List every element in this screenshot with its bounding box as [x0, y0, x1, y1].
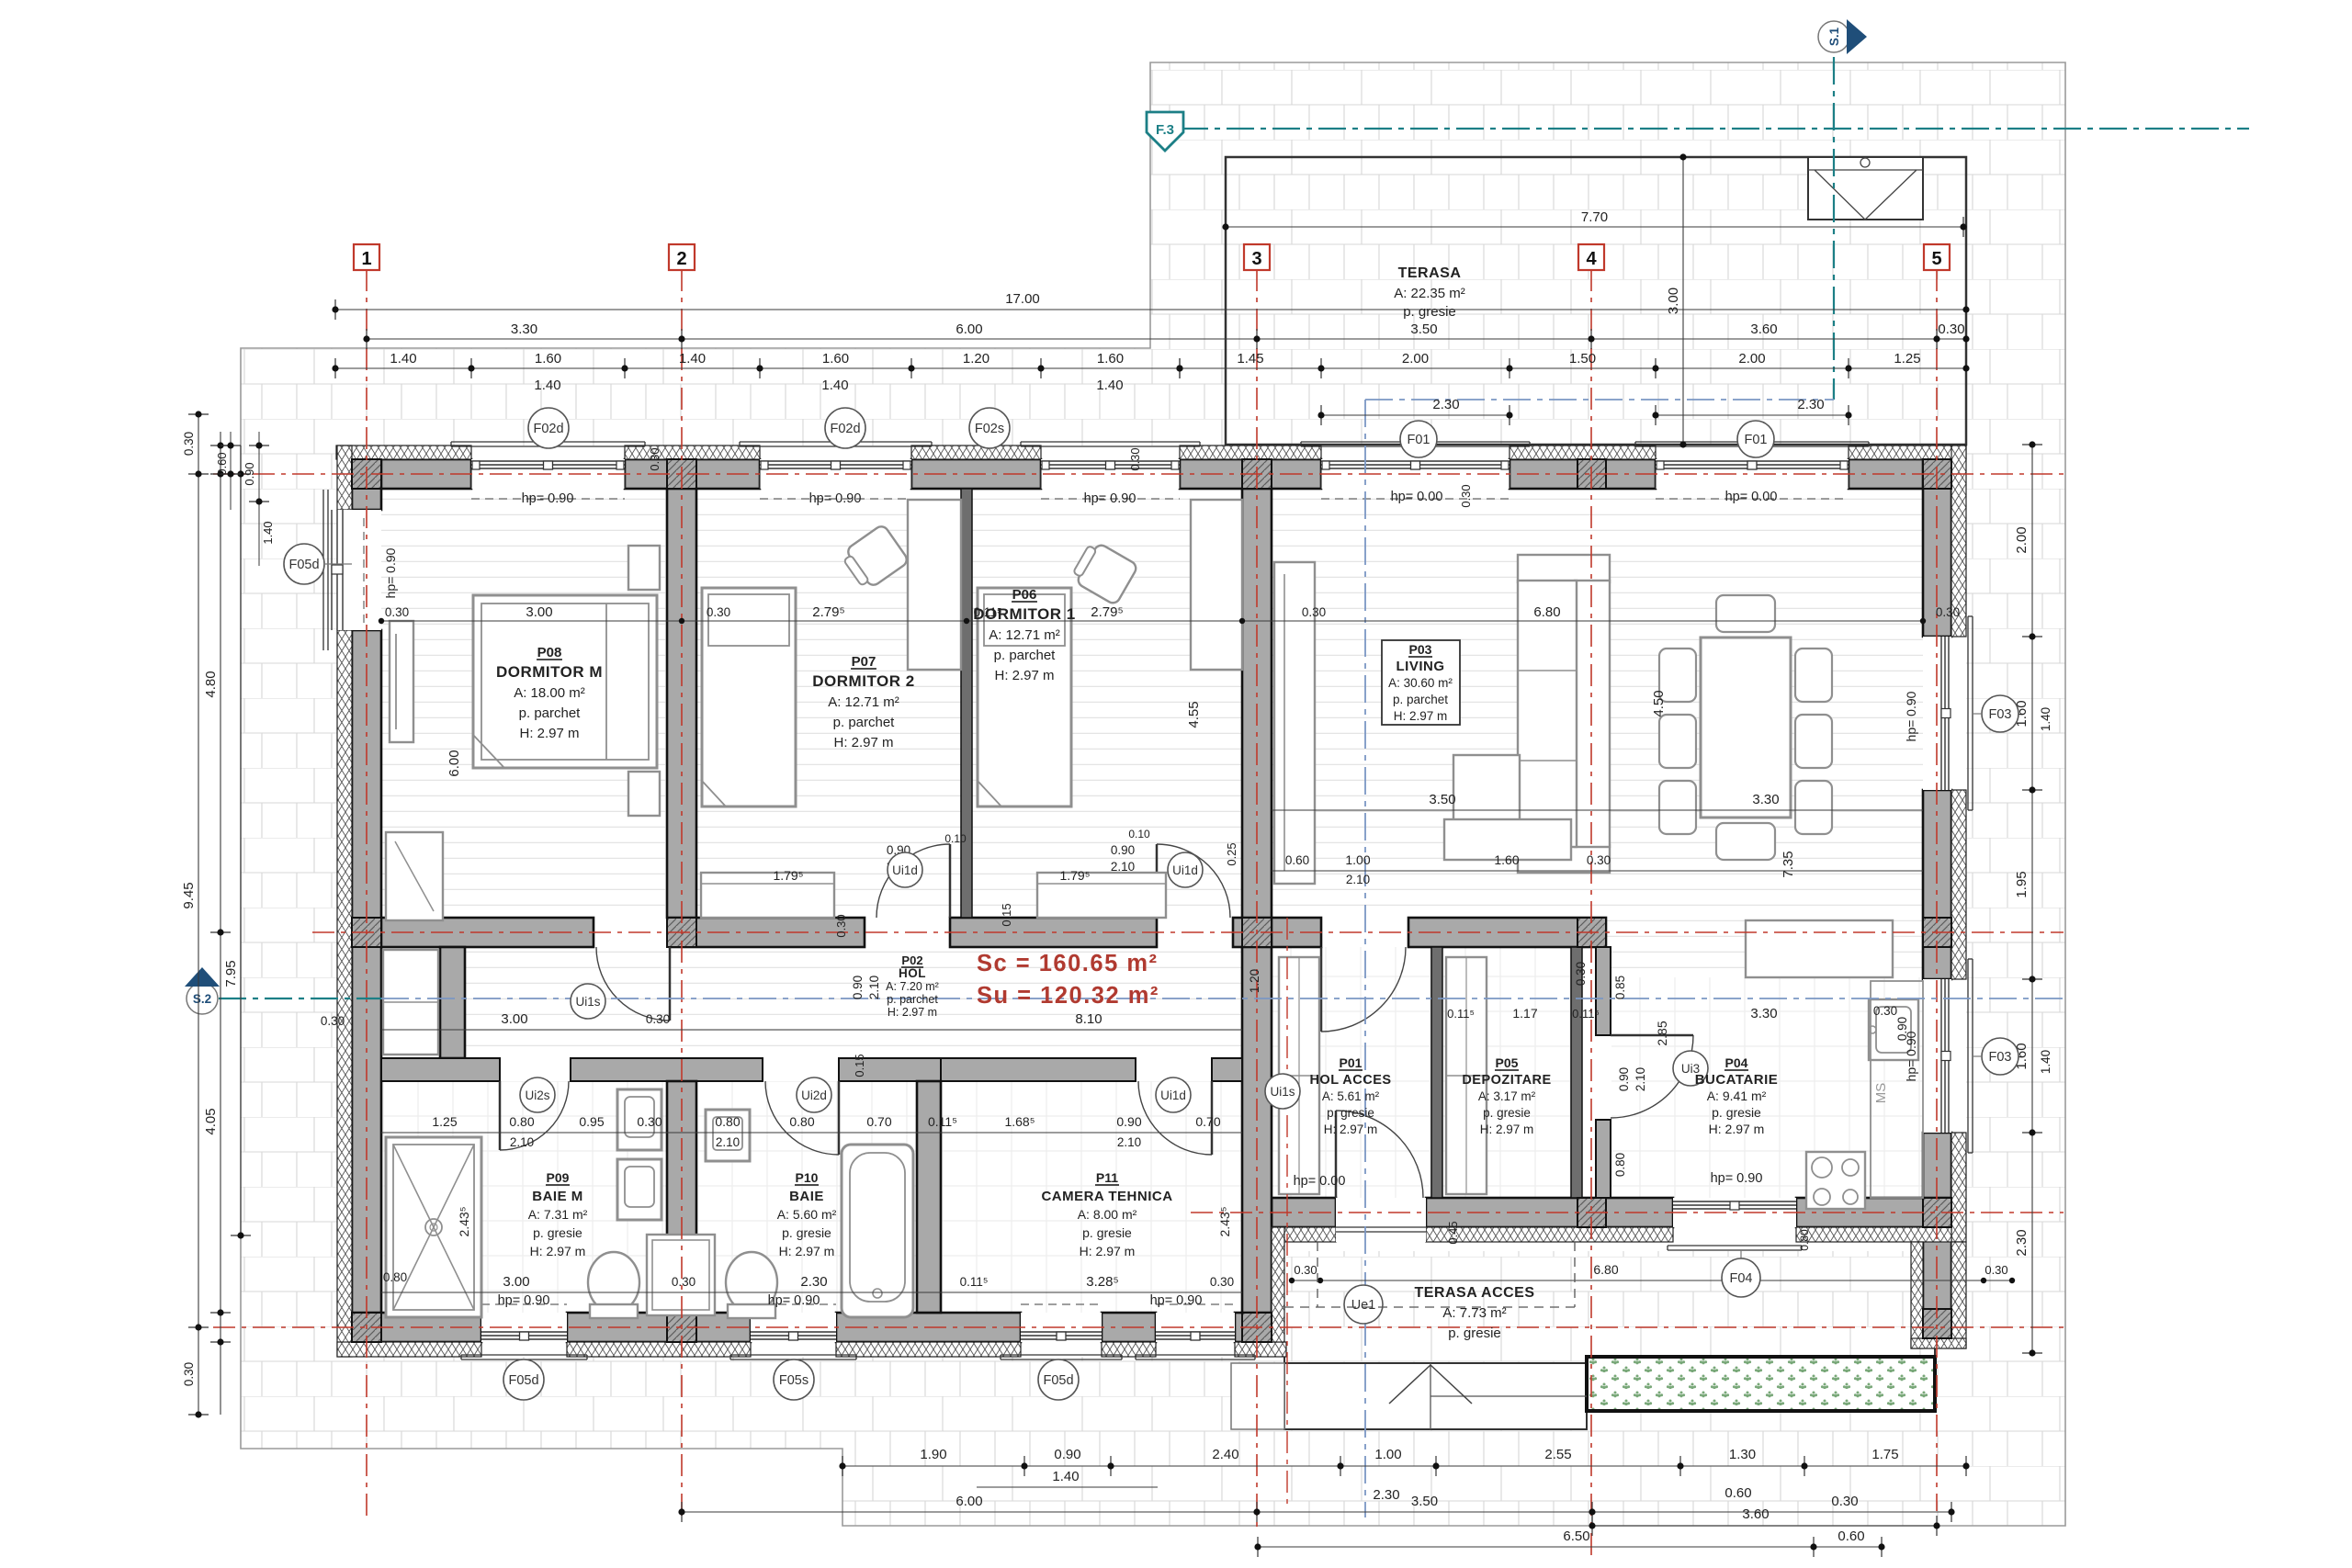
svg-text:2.40: 2.40	[1212, 1447, 1238, 1462]
svg-text:0.80: 0.80	[1613, 1153, 1627, 1177]
svg-text:H: 2.97 m: H: 2.97 m	[519, 726, 579, 741]
svg-text:0.80: 0.80	[789, 1114, 814, 1129]
svg-text:A: 5.61 m²: A: 5.61 m²	[1322, 1089, 1380, 1103]
svg-text:hp= 0.90: hp= 0.90	[1150, 1293, 1203, 1308]
svg-text:0.45: 0.45	[1446, 1221, 1460, 1244]
svg-text:p. parchet: p. parchet	[994, 648, 1057, 663]
svg-text:0.30: 0.30	[646, 1012, 670, 1026]
svg-text:0.30: 0.30	[1302, 605, 1326, 619]
svg-text:BAIE: BAIE	[789, 1189, 824, 1204]
svg-text:1.40: 1.40	[2039, 1050, 2052, 1074]
svg-text:A: 8.00 m²: A: 8.00 m²	[1078, 1207, 1137, 1222]
svg-text:1.90: 1.90	[920, 1447, 946, 1462]
svg-text:Ui2s: Ui2s	[525, 1089, 549, 1102]
svg-text:3.60: 3.60	[1750, 321, 1777, 337]
svg-text:1.00: 1.00	[1374, 1447, 1401, 1462]
svg-text:2.10: 2.10	[1111, 860, 1135, 874]
svg-text:0.30: 0.30	[1936, 605, 1960, 619]
svg-text:Ui1s: Ui1s	[575, 995, 600, 1009]
svg-text:3.60: 3.60	[1742, 1506, 1769, 1522]
svg-text:p. parchet: p. parchet	[1393, 693, 1448, 706]
svg-text:1.40: 1.40	[390, 351, 416, 367]
svg-text:2.30: 2.30	[1432, 397, 1459, 412]
svg-text:2.43⁵: 2.43⁵	[1217, 1206, 1232, 1236]
svg-text:P04: P04	[1725, 1055, 1748, 1070]
svg-text:2.79⁵: 2.79⁵	[812, 604, 844, 620]
svg-text:F04: F04	[1730, 1271, 1753, 1286]
svg-text:MS: MS	[1873, 1083, 1889, 1104]
svg-text:F05d: F05d	[1043, 1373, 1073, 1388]
svg-text:F02d: F02d	[830, 422, 860, 436]
svg-text:F05d: F05d	[288, 558, 319, 572]
svg-text:Ui1d: Ui1d	[1172, 863, 1198, 877]
svg-text:1.95: 1.95	[2014, 871, 2030, 897]
svg-text:LIVING: LIVING	[1396, 659, 1444, 674]
svg-text:P10: P10	[796, 1170, 819, 1185]
svg-text:hp= 0.00: hp= 0.00	[1725, 490, 1778, 504]
svg-text:0.10: 0.10	[944, 832, 967, 845]
svg-text:2.55: 2.55	[1544, 1447, 1571, 1462]
svg-text:P08: P08	[537, 645, 562, 660]
svg-text:1.40: 1.40	[1096, 378, 1123, 393]
svg-text:7.70: 7.70	[1581, 209, 1608, 225]
svg-text:S.1: S.1	[1827, 27, 1841, 46]
svg-text:4: 4	[1586, 249, 1597, 269]
svg-text:HOL ACCES: HOL ACCES	[1309, 1073, 1391, 1088]
svg-text:0.11⁵: 0.11⁵	[960, 1275, 989, 1289]
svg-text:Ui2d: Ui2d	[801, 1089, 827, 1102]
svg-text:5: 5	[1931, 249, 1941, 269]
svg-text:3.00: 3.00	[503, 1274, 529, 1290]
svg-text:0.90: 0.90	[1116, 1114, 1141, 1129]
svg-text:1.45: 1.45	[1237, 351, 1263, 367]
svg-text:2.10: 2.10	[1346, 873, 1370, 886]
svg-text:hp= 0.90: hp= 0.90	[1084, 491, 1136, 506]
svg-text:hp= 0.00: hp= 0.00	[1391, 490, 1443, 504]
svg-text:17.00: 17.00	[1005, 291, 1040, 307]
svg-text:TERASA: TERASA	[1398, 265, 1462, 281]
svg-text:P06: P06	[1012, 587, 1037, 603]
svg-text:A: 12.71 m²: A: 12.71 m²	[989, 627, 1060, 643]
svg-text:2.30: 2.30	[1797, 397, 1824, 412]
svg-text:H: 2.97 m: H: 2.97 m	[1709, 1122, 1765, 1136]
svg-text:1.40: 1.40	[679, 351, 706, 367]
svg-text:0.30: 0.30	[1831, 1494, 1858, 1509]
svg-text:H: 2.97 m: H: 2.97 m	[1080, 1244, 1136, 1258]
svg-text:F02s: F02s	[975, 422, 1004, 436]
svg-text:P11: P11	[1096, 1170, 1118, 1185]
svg-text:0.80: 0.80	[1798, 1229, 1811, 1251]
svg-text:A: 7.20 m²: A: 7.20 m²	[886, 980, 939, 993]
svg-text:1.20: 1.20	[963, 351, 989, 367]
svg-text:1.75: 1.75	[1871, 1447, 1898, 1462]
svg-text:F03: F03	[1989, 1050, 2012, 1065]
svg-text:p. parchet: p. parchet	[887, 993, 938, 1006]
svg-text:A: 5.60 m²: A: 5.60 m²	[777, 1207, 837, 1222]
svg-text:F05s: F05s	[779, 1373, 808, 1388]
svg-text:0.30: 0.30	[672, 1275, 695, 1289]
svg-text:p. gresie: p. gresie	[1483, 1106, 1531, 1120]
svg-text:2.00: 2.00	[2014, 526, 2030, 553]
svg-text:p. gresie: p. gresie	[1712, 1105, 1761, 1120]
svg-text:3.50: 3.50	[1429, 792, 1455, 807]
svg-text:0.10: 0.10	[1128, 828, 1150, 840]
svg-text:hp= 0.90: hp= 0.90	[498, 1293, 550, 1308]
svg-text:0.30: 0.30	[1984, 1263, 2007, 1277]
svg-text:H: 2.97 m: H: 2.97 m	[779, 1244, 835, 1258]
svg-text:1.17: 1.17	[1512, 1006, 1537, 1021]
svg-text:0.30: 0.30	[648, 447, 661, 470]
svg-text:p. gresie: p. gresie	[533, 1225, 582, 1240]
svg-text:hp= 0.90: hp= 0.90	[768, 1293, 820, 1308]
svg-text:1.60: 1.60	[1097, 351, 1124, 367]
svg-text:p. gresie: p. gresie	[782, 1225, 831, 1240]
svg-text:F02d: F02d	[533, 422, 563, 436]
svg-text:H: 2.97 m: H: 2.97 m	[530, 1244, 586, 1258]
svg-text:1.60: 1.60	[1494, 852, 1519, 867]
svg-text:hp= 0.90: hp= 0.90	[1904, 691, 1918, 741]
svg-text:HOL: HOL	[899, 966, 926, 980]
svg-text:0.80: 0.80	[509, 1114, 534, 1129]
svg-text:0.85: 0.85	[1613, 976, 1627, 999]
svg-text:0.30: 0.30	[707, 605, 730, 619]
svg-text:TERASA ACCES: TERASA ACCES	[1414, 1285, 1534, 1301]
svg-text:3.00: 3.00	[501, 1011, 527, 1027]
svg-text:0.90: 0.90	[1617, 1067, 1631, 1091]
svg-text:0.80: 0.80	[383, 1270, 407, 1284]
svg-text:4.05: 4.05	[203, 1108, 219, 1134]
svg-text:1.30: 1.30	[1729, 1447, 1756, 1462]
svg-text:3: 3	[1251, 249, 1261, 269]
svg-text:p. parchet: p. parchet	[519, 705, 582, 721]
svg-text:0.90: 0.90	[1111, 843, 1135, 857]
svg-text:1.50: 1.50	[1569, 351, 1596, 367]
svg-text:0.30: 0.30	[182, 1362, 196, 1386]
svg-text:DEPOZITARE: DEPOZITARE	[1462, 1073, 1551, 1088]
svg-text:1.79⁵: 1.79⁵	[1059, 868, 1090, 883]
svg-text:0.30: 0.30	[1938, 321, 1964, 337]
svg-text:0.30: 0.30	[321, 1014, 345, 1028]
svg-text:p. gresie: p. gresie	[1082, 1225, 1132, 1240]
svg-text:6.80: 6.80	[1593, 1262, 1618, 1277]
svg-text:A: 7.31 m²: A: 7.31 m²	[528, 1207, 588, 1222]
svg-text:0.30: 0.30	[385, 605, 409, 619]
svg-text:DORMITOR 2: DORMITOR 2	[812, 672, 914, 690]
svg-text:F01: F01	[1745, 433, 1768, 447]
svg-text:H: 2.97 m: H: 2.97 m	[994, 668, 1054, 683]
svg-text:H: 2.97 m: H: 2.97 m	[1394, 709, 1448, 723]
svg-text:7.95: 7.95	[223, 960, 239, 987]
svg-text:0.11⁵: 0.11⁵	[928, 1114, 957, 1129]
svg-text:hp= 0.90: hp= 0.90	[1711, 1171, 1763, 1186]
svg-text:Sc = 160.65 m²: Sc = 160.65 m²	[977, 951, 1159, 976]
svg-text:0.25: 0.25	[1225, 842, 1238, 865]
svg-text:A: 12.71 m²: A: 12.71 m²	[828, 694, 899, 710]
svg-text:1.60: 1.60	[822, 351, 849, 367]
svg-text:3.30: 3.30	[1750, 1006, 1777, 1021]
svg-text:CAMERA TEHNICA: CAMERA TEHNICA	[1041, 1189, 1172, 1204]
svg-text:P01: P01	[1340, 1055, 1363, 1070]
svg-text:6.00: 6.00	[955, 321, 982, 337]
svg-text:DORMITOR 1: DORMITOR 1	[973, 605, 1075, 623]
svg-text:3.50: 3.50	[1410, 321, 1437, 337]
svg-text:2.30: 2.30	[800, 1274, 827, 1290]
svg-text:F01: F01	[1408, 433, 1430, 447]
svg-text:BAIE M: BAIE M	[532, 1189, 583, 1204]
svg-text:p. gresie: p. gresie	[1403, 304, 1456, 320]
svg-text:0.30: 0.30	[1210, 1275, 1234, 1289]
svg-text:1.79⁵: 1.79⁵	[773, 868, 803, 883]
svg-text:0.60: 0.60	[215, 452, 229, 475]
svg-text:p. parchet: p. parchet	[833, 715, 896, 730]
svg-text:0.30: 0.30	[834, 914, 848, 937]
svg-text:p. gresie: p. gresie	[1448, 1325, 1501, 1341]
svg-text:6.50: 6.50	[1563, 1529, 1589, 1544]
svg-text:2: 2	[676, 249, 686, 269]
svg-text:1.20: 1.20	[1248, 969, 1261, 993]
svg-text:3.00: 3.00	[1666, 288, 1681, 314]
svg-text:P02: P02	[901, 953, 922, 967]
svg-text:Ui1s: Ui1s	[1270, 1085, 1295, 1099]
svg-text:H: 2.97 m: H: 2.97 m	[1480, 1122, 1534, 1136]
svg-text:0.30: 0.30	[1574, 962, 1588, 986]
svg-text:4.50: 4.50	[1651, 690, 1667, 716]
svg-text:3.50: 3.50	[1411, 1494, 1438, 1509]
svg-text:A: 30.60 m²: A: 30.60 m²	[1388, 676, 1453, 690]
svg-text:6.80: 6.80	[1533, 604, 1560, 620]
svg-text:2.10: 2.10	[510, 1135, 534, 1149]
svg-text:Su = 120.32 m²: Su = 120.32 m²	[977, 983, 1159, 1009]
svg-text:0.11⁵: 0.11⁵	[1572, 1007, 1600, 1021]
svg-text:hp= 0.00: hp= 0.00	[1294, 1174, 1346, 1189]
svg-text:A: 18.00 m²: A: 18.00 m²	[514, 685, 585, 701]
svg-text:P05: P05	[1496, 1055, 1519, 1070]
svg-text:2.10: 2.10	[867, 976, 881, 999]
svg-text:Ui1d: Ui1d	[892, 863, 918, 877]
svg-text:A: 22.35 m²: A: 22.35 m²	[1394, 286, 1465, 301]
svg-text:2.30: 2.30	[1373, 1487, 1399, 1503]
svg-text:0.90: 0.90	[1054, 1447, 1080, 1462]
svg-text:0.60: 0.60	[1724, 1485, 1751, 1501]
svg-text:H: 2.97 m: H: 2.97 m	[833, 735, 893, 750]
svg-text:S.2: S.2	[193, 992, 211, 1006]
svg-text:P03: P03	[1409, 642, 1432, 657]
svg-text:A: 3.17 m²: A: 3.17 m²	[1478, 1089, 1536, 1103]
svg-text:hp= 0.90: hp= 0.90	[809, 491, 862, 506]
svg-text:Ue1: Ue1	[1351, 1298, 1376, 1313]
svg-text:0.15: 0.15	[1000, 903, 1013, 926]
svg-text:6.00: 6.00	[447, 750, 462, 776]
svg-text:hp= 0.90: hp= 0.90	[383, 547, 398, 598]
svg-text:F03: F03	[1989, 707, 2012, 722]
svg-text:H: 2.97 m: H: 2.97 m	[1324, 1122, 1378, 1136]
svg-text:2.10: 2.10	[716, 1135, 740, 1149]
svg-text:0.30: 0.30	[182, 432, 196, 456]
svg-text:0.60: 0.60	[1285, 853, 1309, 867]
svg-text:2.79⁵: 2.79⁵	[1091, 604, 1123, 620]
svg-text:3.30: 3.30	[511, 321, 537, 337]
svg-text:F.3: F.3	[1156, 122, 1174, 138]
svg-text:0.11⁵: 0.11⁵	[1447, 1007, 1475, 1021]
svg-text:3.30: 3.30	[1752, 792, 1779, 807]
svg-text:0.95: 0.95	[579, 1114, 604, 1129]
svg-text:0.90: 0.90	[243, 462, 256, 485]
svg-text:p. gresie: p. gresie	[1327, 1106, 1374, 1120]
svg-text:0.70: 0.70	[1195, 1114, 1220, 1129]
svg-text:2.10: 2.10	[1634, 1067, 1647, 1091]
svg-text:0.30: 0.30	[1459, 484, 1473, 507]
svg-text:0.30: 0.30	[1873, 1004, 1897, 1018]
svg-text:9.45: 9.45	[181, 882, 197, 908]
svg-text:1.60: 1.60	[535, 351, 561, 367]
svg-text:Ui1d: Ui1d	[1160, 1089, 1186, 1102]
svg-text:A: 9.41 m²: A: 9.41 m²	[1707, 1089, 1767, 1103]
svg-text:1.40: 1.40	[821, 378, 848, 393]
svg-text:2.00: 2.00	[1738, 351, 1765, 367]
svg-text:F05d: F05d	[508, 1373, 538, 1388]
svg-text:1.40: 1.40	[1052, 1469, 1079, 1484]
svg-text:4.80: 4.80	[203, 671, 219, 697]
svg-text:1.40: 1.40	[2039, 707, 2052, 731]
svg-text:3.00: 3.00	[526, 604, 552, 620]
svg-text:2.00: 2.00	[1402, 351, 1429, 367]
svg-text:1.00: 1.00	[1345, 852, 1370, 867]
svg-text:P07: P07	[852, 654, 876, 670]
svg-text:H: 2.97 m: H: 2.97 m	[888, 1006, 937, 1019]
svg-text:6.00: 6.00	[955, 1494, 982, 1509]
svg-text:4.55: 4.55	[1186, 701, 1202, 728]
svg-text:1: 1	[361, 249, 371, 269]
svg-text:2.85: 2.85	[1655, 1021, 1669, 1045]
svg-text:1.40: 1.40	[261, 521, 275, 544]
svg-text:1.40: 1.40	[534, 378, 560, 393]
svg-text:2.10: 2.10	[1117, 1135, 1141, 1149]
svg-text:0.90: 0.90	[851, 976, 865, 999]
svg-text:1.68⁵: 1.68⁵	[1004, 1114, 1035, 1129]
svg-text:0.30: 0.30	[1128, 447, 1142, 470]
svg-text:2.30: 2.30	[2014, 1229, 2030, 1256]
svg-text:0.30: 0.30	[1294, 1263, 1317, 1277]
svg-text:0.80: 0.80	[715, 1114, 740, 1129]
svg-text:hp= 0.90: hp= 0.90	[522, 491, 574, 506]
svg-text:BUCATARIE: BUCATARIE	[1695, 1072, 1779, 1088]
svg-text:1.25: 1.25	[432, 1114, 457, 1129]
svg-text:0.30: 0.30	[637, 1114, 661, 1129]
svg-text:P09: P09	[547, 1170, 570, 1185]
svg-text:hp= 0.90: hp= 0.90	[1904, 1031, 1918, 1081]
svg-text:DORMITOR M: DORMITOR M	[496, 663, 603, 681]
svg-text:8.10: 8.10	[1075, 1011, 1102, 1027]
svg-text:1.25: 1.25	[1894, 351, 1920, 367]
svg-text:2.43⁵: 2.43⁵	[457, 1206, 471, 1236]
svg-text:0.70: 0.70	[866, 1114, 891, 1129]
svg-text:3.28⁵: 3.28⁵	[1086, 1274, 1118, 1290]
svg-text:0.15: 0.15	[853, 1054, 866, 1077]
svg-text:7.35: 7.35	[1781, 851, 1796, 877]
svg-text:0.60: 0.60	[1837, 1529, 1864, 1544]
svg-text:0.30: 0.30	[1587, 853, 1611, 867]
